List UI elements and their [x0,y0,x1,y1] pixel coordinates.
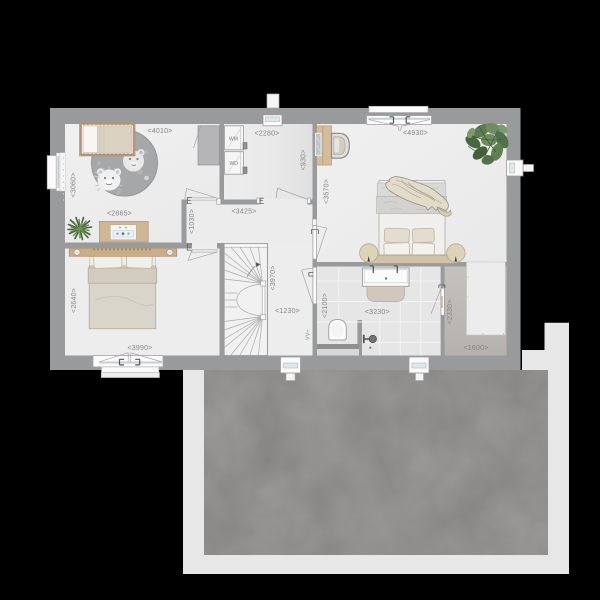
svg-text:<4930>: <4930> [403,130,428,137]
svg-text:<930>: <930> [301,150,308,171]
svg-text:<3425>: <3425> [232,209,257,216]
svg-text:<3060>: <3060> [71,173,78,198]
svg-text:<1030>: <1030> [189,209,196,234]
svg-text:<3970>: <3970> [270,266,277,291]
svg-text:WD: WD [230,161,239,167]
svg-text:<2865>: <2865> [107,211,132,218]
svg-text:VV~: VV~ [306,329,312,340]
svg-text:<1600>: <1600> [464,345,489,352]
svg-text:<4010>: <4010> [148,128,173,135]
svg-text:WM: WM [229,136,238,142]
svg-text:<1230>: <1230> [275,308,300,315]
svg-text:<2330>: <2330> [447,300,454,325]
svg-text:<3990>: <3990> [128,345,153,352]
svg-text:<2640>: <2640> [71,288,78,313]
svg-text:<3570>: <3570> [324,179,331,204]
svg-text:<3230>: <3230> [365,309,390,316]
svg-text:<2280>: <2280> [255,131,280,138]
svg-text:<2100>: <2100> [322,293,329,318]
